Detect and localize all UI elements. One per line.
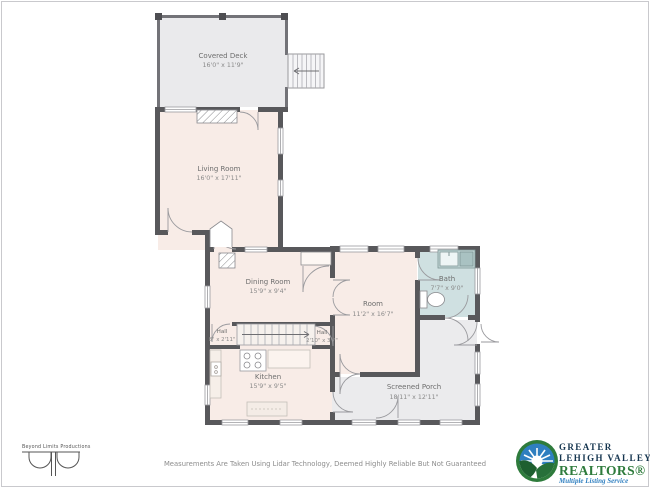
kitchen-counter (268, 350, 310, 368)
kitchen-sink-icon (211, 362, 221, 376)
screened-porch-dims: 18'11" x 12'11" (389, 394, 438, 401)
deck-post (219, 13, 226, 20)
bath-label: Bath (439, 275, 455, 283)
glvr-line1: GREATER (559, 442, 613, 452)
closet (301, 252, 331, 265)
bath-dims: 7'7" x 9'0" (430, 285, 463, 292)
kitchen-dims: 15'9" x 9'5" (249, 383, 286, 390)
main-stairs (237, 324, 315, 345)
living-room-label: Living Room (198, 165, 241, 173)
deck-post (155, 13, 162, 20)
screened-porch-label: Screened Porch (387, 383, 441, 391)
glvr-line4: Multiple Listing Service (558, 477, 628, 485)
glvr-line3: REALTORS® (559, 463, 645, 478)
hall-left-dims: 8" x 2'11" (209, 337, 236, 343)
floorplan-page: Covered Deck 16'0" x 11'9" Living Room 1… (0, 0, 650, 488)
chimney-icon (219, 253, 235, 268)
dining-room-label: Dining Room (246, 278, 291, 286)
toilet-icon (420, 291, 427, 308)
hall-right-label: Hall (317, 330, 328, 336)
hall-left-label: Hall (217, 329, 228, 335)
dining-room-dims: 15'9" x 9'4" (249, 288, 286, 295)
stove-icon (240, 350, 266, 371)
disclaimer-text: Measurements Are Taken Using Lidar Techn… (164, 460, 486, 468)
producer-logo-icon (22, 452, 80, 476)
deck-stairs (288, 54, 324, 88)
producer-logo: Beyond Limits Productions (22, 444, 91, 476)
hall-right-dims: 2'10" x 3'7" (306, 338, 338, 344)
producer-name: Beyond Limits Productions (22, 444, 91, 450)
room-dims: 11'2" x 16'7" (352, 311, 393, 318)
glvr-logo: GREATER LEHIGH VALLEY REALTORS® Multiple… (512, 440, 650, 485)
covered-deck-dims: 16'0" x 11'9" (202, 62, 243, 69)
glvr-line2: LEHIGH VALLEY (559, 453, 650, 463)
footer: Beyond Limits Productions Measurements A… (22, 440, 650, 485)
kitchen-label: Kitchen (255, 373, 281, 381)
fireplace-icon (197, 110, 237, 123)
room-label: Room (363, 300, 383, 308)
floorplan-svg: Covered Deck 16'0" x 11'9" Living Room 1… (0, 0, 650, 488)
living-room-dims: 16'0" x 17'11" (196, 175, 241, 182)
deck-post (281, 13, 288, 20)
covered-deck-label: Covered Deck (199, 52, 249, 60)
